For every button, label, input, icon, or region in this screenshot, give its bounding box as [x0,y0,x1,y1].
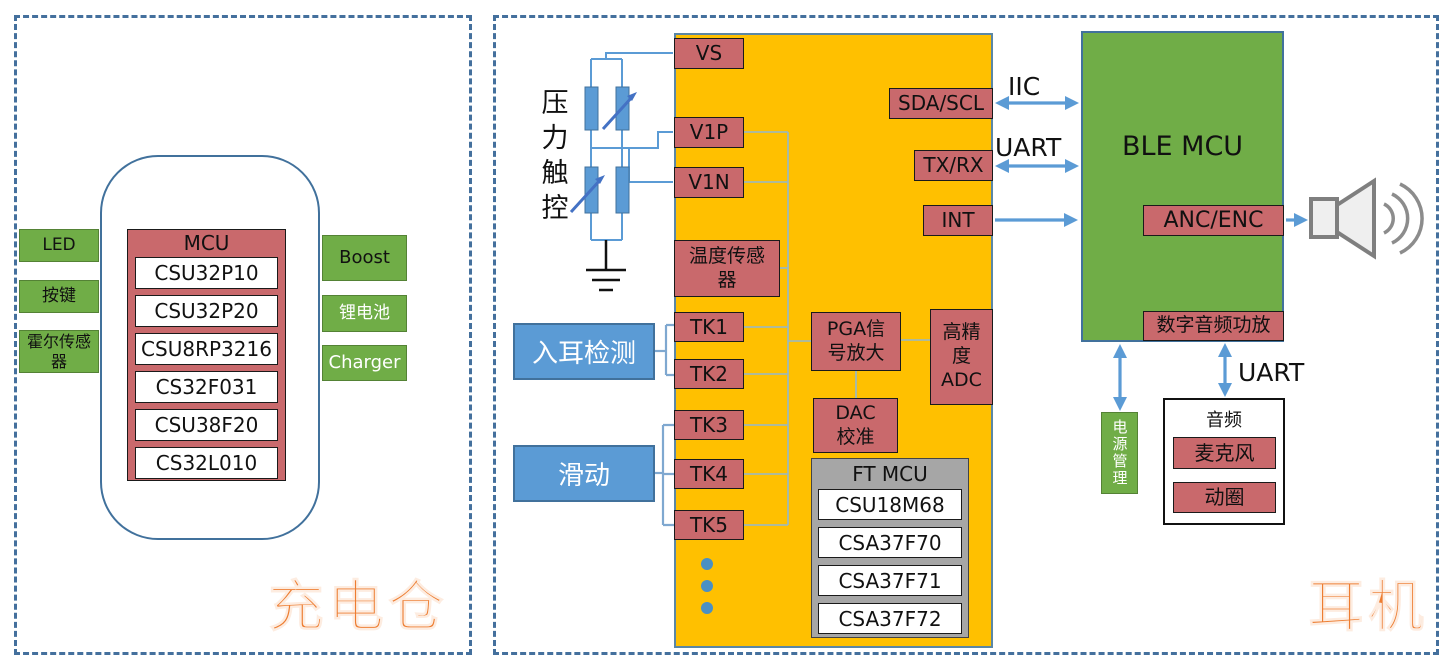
ble-mcu-box: BLE MCU [1081,31,1284,342]
coil-box: 动圈 [1173,482,1276,513]
led-box: LED [19,229,99,262]
ft-mcu-box: FT MCU CSU18M68 CSA37F70 CSA37F71 CSA37F… [811,458,969,638]
pin-sda-scl: SDA/SCL [889,88,993,119]
charging-case-caption: 充电仓 [268,580,448,636]
pin-tk3: TK3 [674,410,744,440]
ft-chip: CSA37F71 [818,565,962,596]
ft-chip: CSA37F70 [818,527,962,558]
case-mcu-title: MCU [184,230,230,257]
uart-bottom-label: UART [1238,358,1304,387]
case-chip: CSU32P10 [135,257,278,289]
adc-box: 高精度ADC [930,309,993,405]
pin-tk5: TK5 [674,510,744,540]
case-chip: CSU38F20 [135,409,278,441]
button-box: 按键 [19,280,99,313]
iic-label: IIC [1008,72,1040,101]
uart-top-label: UART [995,133,1061,162]
case-mcu-box: MCU CSU32P10 CSU32P20 CSU8RP3216 CS32F03… [127,229,286,481]
pin-tk1: TK1 [674,312,744,342]
pin-int: INT [923,205,993,236]
pin-tk4: TK4 [674,459,744,489]
in-ear-detect-box: 入耳检测 [513,323,655,380]
audio-title: 音频 [1165,406,1283,432]
diagram-stage: MCU CSU32P10 CSU32P20 CSU8RP3216 CS32F03… [0,0,1447,664]
slide-box: 滑动 [513,445,655,502]
boost-box: Boost [322,235,407,281]
ft-chip: CSU18M68 [818,489,962,520]
more-pins-dot [701,602,713,614]
more-pins-dot [701,580,713,592]
earbud-caption: 耳机 [1308,580,1428,636]
charger-box: Charger [322,345,407,381]
ble-mcu-title: BLE MCU [1083,131,1282,162]
pressure-touch-label: 压力触控 [533,84,571,232]
case-chip: CSU8RP3216 [135,333,278,365]
ft-mcu-title: FT MCU [852,459,928,489]
mic-box: 麦克风 [1173,437,1276,469]
more-pins-dot [701,558,713,570]
hall-sensor-box: 霍尔传感器 [19,330,99,373]
temp-sensor-box: 温度传感器 [674,240,780,297]
pin-tx-rx: TX/RX [914,150,993,181]
anc-enc-box: ANC/ENC [1143,205,1284,236]
pga-box: PGA信号放大 [811,312,901,371]
power-mgmt-box: 电源管理 [1101,412,1138,494]
digital-amp-box: 数字音频功放 [1143,311,1284,341]
case-chip: CSU32P20 [135,295,278,327]
dac-box: DAC校准 [813,398,898,453]
case-chip: CS32F031 [135,371,278,403]
case-chip: CS32L010 [135,447,278,479]
battery-box: 锂电池 [322,295,407,332]
pin-v1n: V1N [674,167,744,198]
ft-chip: CSA37F72 [818,603,962,634]
pin-vs: VS [674,38,744,69]
pin-v1p: V1P [674,117,744,148]
pin-tk2: TK2 [674,359,744,389]
